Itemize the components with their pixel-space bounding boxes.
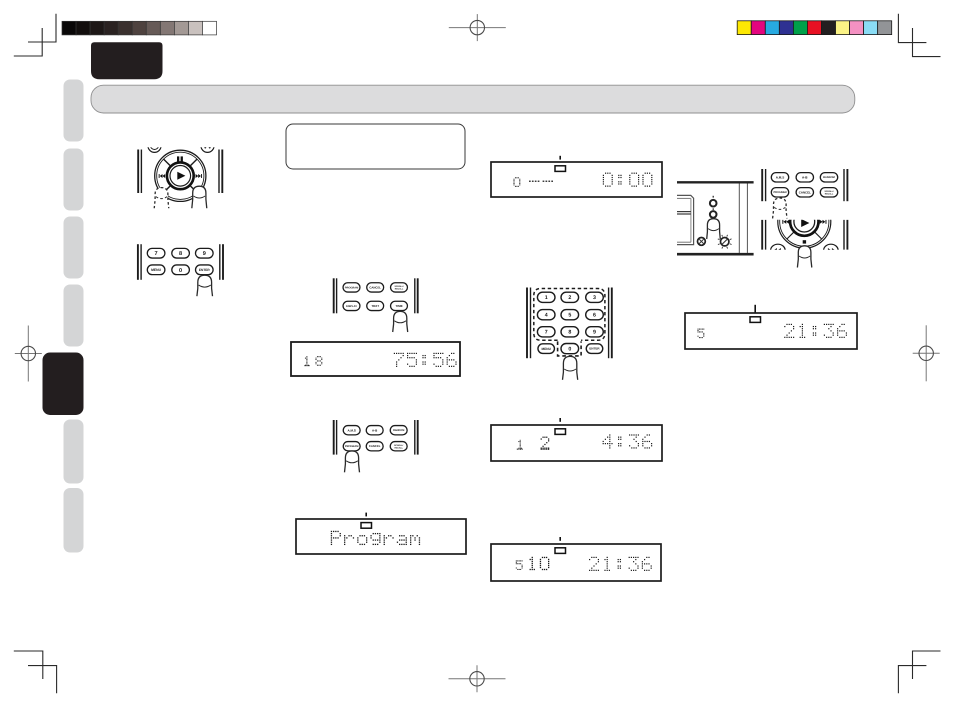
svg-text:MENU: MENU xyxy=(542,347,552,351)
svg-text:0: 0 xyxy=(568,347,571,353)
svg-text:SCROLL/: SCROLL/ xyxy=(824,190,834,193)
svg-text:9: 9 xyxy=(593,330,596,336)
svg-text:5: 5 xyxy=(568,313,571,319)
svg-text:PROGRAM: PROGRAM xyxy=(773,191,786,194)
svg-text:PROGRAM: PROGRAM xyxy=(345,445,359,448)
svg-text:8: 8 xyxy=(179,251,182,257)
svg-text:3: 3 xyxy=(593,295,596,301)
svg-text:DISPLAY: DISPLAY xyxy=(346,305,357,308)
svg-text:CANCEL: CANCEL xyxy=(369,285,381,289)
svg-text:0: 0 xyxy=(179,268,182,274)
svg-text:1: 1 xyxy=(545,295,548,301)
svg-text:4: 4 xyxy=(545,313,548,319)
svg-text:A-B: A-B xyxy=(802,175,808,179)
svg-text:MENU: MENU xyxy=(151,268,162,272)
svg-text:A-B: A-B xyxy=(372,428,378,432)
svg-text:7: 7 xyxy=(545,330,548,336)
svg-text:CANCEL: CANCEL xyxy=(799,190,811,194)
svg-text:ENTER: ENTER xyxy=(589,347,600,351)
svg-text:9: 9 xyxy=(203,251,206,257)
svg-text:7: 7 xyxy=(155,251,158,257)
svg-text:RECALL: RECALL xyxy=(395,288,404,291)
svg-text:6: 6 xyxy=(593,313,596,319)
svg-text:A.M.S: A.M.S xyxy=(776,175,785,179)
svg-text:CANCEL: CANCEL xyxy=(369,444,381,448)
svg-text:TIME: TIME xyxy=(395,304,402,308)
svg-text:TEXT: TEXT xyxy=(371,304,379,308)
svg-text:PROGRAM: PROGRAM xyxy=(345,286,359,289)
svg-text:RECALL: RECALL xyxy=(394,446,403,449)
svg-text:RECALL: RECALL xyxy=(825,193,834,196)
svg-text:8: 8 xyxy=(568,330,571,336)
svg-text:SCROLL/: SCROLL/ xyxy=(394,285,404,288)
svg-text:RANDOM: RANDOM xyxy=(823,176,835,179)
svg-text:ENTER: ENTER xyxy=(199,268,211,272)
svg-text:RANDOM: RANDOM xyxy=(393,429,404,432)
svg-text:A.M.S: A.M.S xyxy=(348,428,356,432)
svg-text:2: 2 xyxy=(568,295,571,301)
svg-text:SCROLL/: SCROLL/ xyxy=(394,444,404,447)
